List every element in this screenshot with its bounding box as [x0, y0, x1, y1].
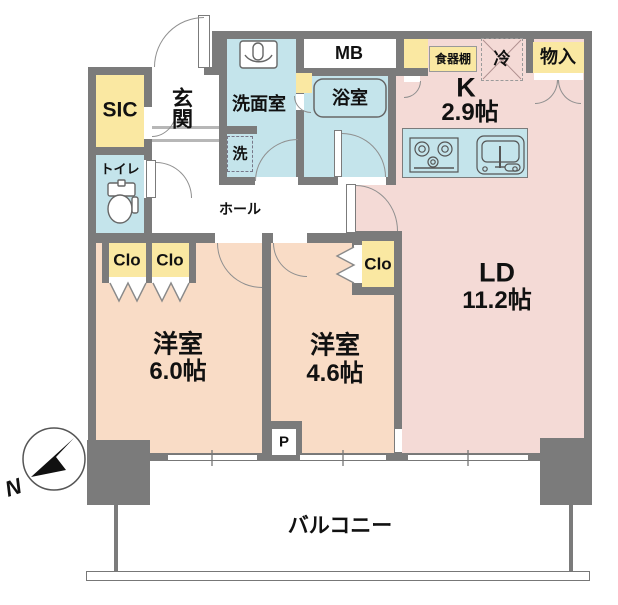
closet-threshold: [152, 277, 189, 283]
wall: [88, 67, 152, 75]
balcony-railing-bar: [86, 571, 590, 581]
entrance-step-line: [152, 139, 219, 142]
window: [408, 454, 528, 461]
wall-panel: [395, 429, 402, 452]
room-size-kitchen: 2.9帖: [441, 101, 498, 125]
room-label-hall: ホール: [219, 202, 261, 216]
wall: [296, 68, 428, 76]
balcony-rail: [569, 505, 573, 571]
bedroom2-door-opening: [273, 233, 307, 243]
sic-door-opening: [144, 107, 152, 139]
compass-icon: N: [2, 428, 85, 502]
room-label-cupboard: 食器棚: [435, 53, 471, 65]
balcony-rail: [114, 505, 118, 571]
compass-north-label: N: [2, 473, 26, 502]
wall: [219, 126, 257, 134]
room-label-storage: 物入: [540, 48, 576, 66]
wall: [396, 31, 404, 76]
room-label-meter-box: MB: [335, 44, 363, 62]
living-door-leaf: [346, 184, 356, 233]
room-size-living: 11.2帖: [462, 289, 531, 313]
wall: [388, 76, 396, 185]
room-size-bedroom1: 6.0帖: [149, 360, 206, 384]
entrance-opening: [152, 67, 204, 75]
toilet-door-arc: [156, 162, 192, 198]
closet-threshold: [109, 277, 146, 283]
room-label-closet3: Clo: [364, 256, 391, 273]
room-label-closet1: Clo: [113, 252, 140, 269]
bath-door-leaf: [334, 130, 342, 177]
wall: [88, 67, 96, 461]
room-label-pipe-space: P: [279, 435, 289, 450]
room-label-washer: 洗: [232, 147, 247, 162]
wall: [219, 39, 227, 183]
room-label-sic: SIC: [102, 100, 137, 121]
room-label-closet2: Clo: [156, 252, 183, 269]
room-label-bedroom2: 洋室: [310, 334, 360, 359]
room-label-balcony: バルコニー: [288, 516, 393, 537]
room-label-bedroom1: 洋室: [153, 333, 203, 358]
floor-plan: N SIC 玄関 トイレ 洗面室 洗 MB 浴室 ホール K 2.9帖 食器棚 …: [0, 0, 618, 605]
room-label-washroom: 洗面室: [232, 95, 286, 113]
room-label-toilet: トイレ: [100, 163, 139, 176]
kitchen-cabinet: [404, 39, 428, 68]
room-label-living: LD: [479, 260, 515, 287]
closet-threshold: [354, 245, 362, 283]
wall: [584, 39, 592, 438]
pillar: [87, 440, 150, 505]
toilet-door-leaf: [146, 160, 156, 198]
room-label-kitchen: K: [456, 75, 476, 102]
linen-cabinet: [296, 73, 312, 93]
bedroom1-door-opening: [215, 233, 262, 243]
room-size-bedroom2: 4.6帖: [306, 362, 363, 386]
room-label-entrance: 玄関: [171, 87, 192, 129]
window: [300, 454, 386, 461]
wall: [88, 147, 152, 155]
storage-threshold: [534, 73, 583, 80]
window: [168, 454, 257, 461]
kitchen-counter: [402, 128, 528, 178]
room-label-bath: 浴室: [332, 89, 368, 107]
room-label-fridge: 冷: [494, 51, 511, 68]
entrance-door-arc: [154, 17, 204, 67]
pillar: [540, 438, 592, 505]
